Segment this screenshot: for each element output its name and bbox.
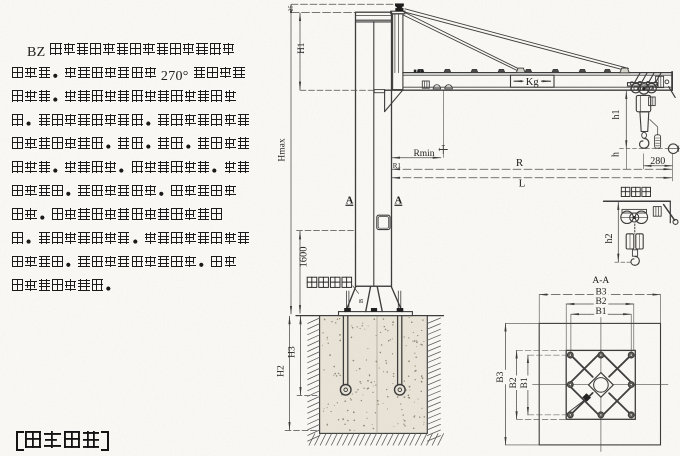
svg-text:B3: B3 <box>595 287 606 297</box>
svg-text:B1: B1 <box>595 307 606 317</box>
svg-text:280: 280 <box>650 156 665 167</box>
svg-text:Kg: Kg <box>526 77 540 88</box>
svg-text:H3: H3 <box>288 346 298 358</box>
svg-text:A-A: A-A <box>592 276 609 286</box>
svg-text:B: B <box>358 298 365 303</box>
svg-text:B2: B2 <box>595 297 606 307</box>
svg-text:B1: B1 <box>520 377 530 388</box>
svg-text:Hmax: Hmax <box>278 138 288 161</box>
svg-text:Rmin: Rmin <box>413 149 434 159</box>
svg-text:H1: H1 <box>296 43 306 54</box>
svg-text:h2: h2 <box>604 234 615 244</box>
svg-text:1600: 1600 <box>299 247 310 268</box>
svg-text:25: 25 <box>288 5 294 11</box>
svg-text:R1: R1 <box>393 162 402 170</box>
svg-text:B3: B3 <box>496 371 506 382</box>
svg-text:H2: H2 <box>276 365 286 377</box>
svg-text:h: h <box>611 152 622 157</box>
svg-text:B2: B2 <box>509 377 519 388</box>
svg-text:R: R <box>516 157 524 169</box>
svg-text:L: L <box>519 178 526 190</box>
svg-text:h1: h1 <box>611 110 622 120</box>
